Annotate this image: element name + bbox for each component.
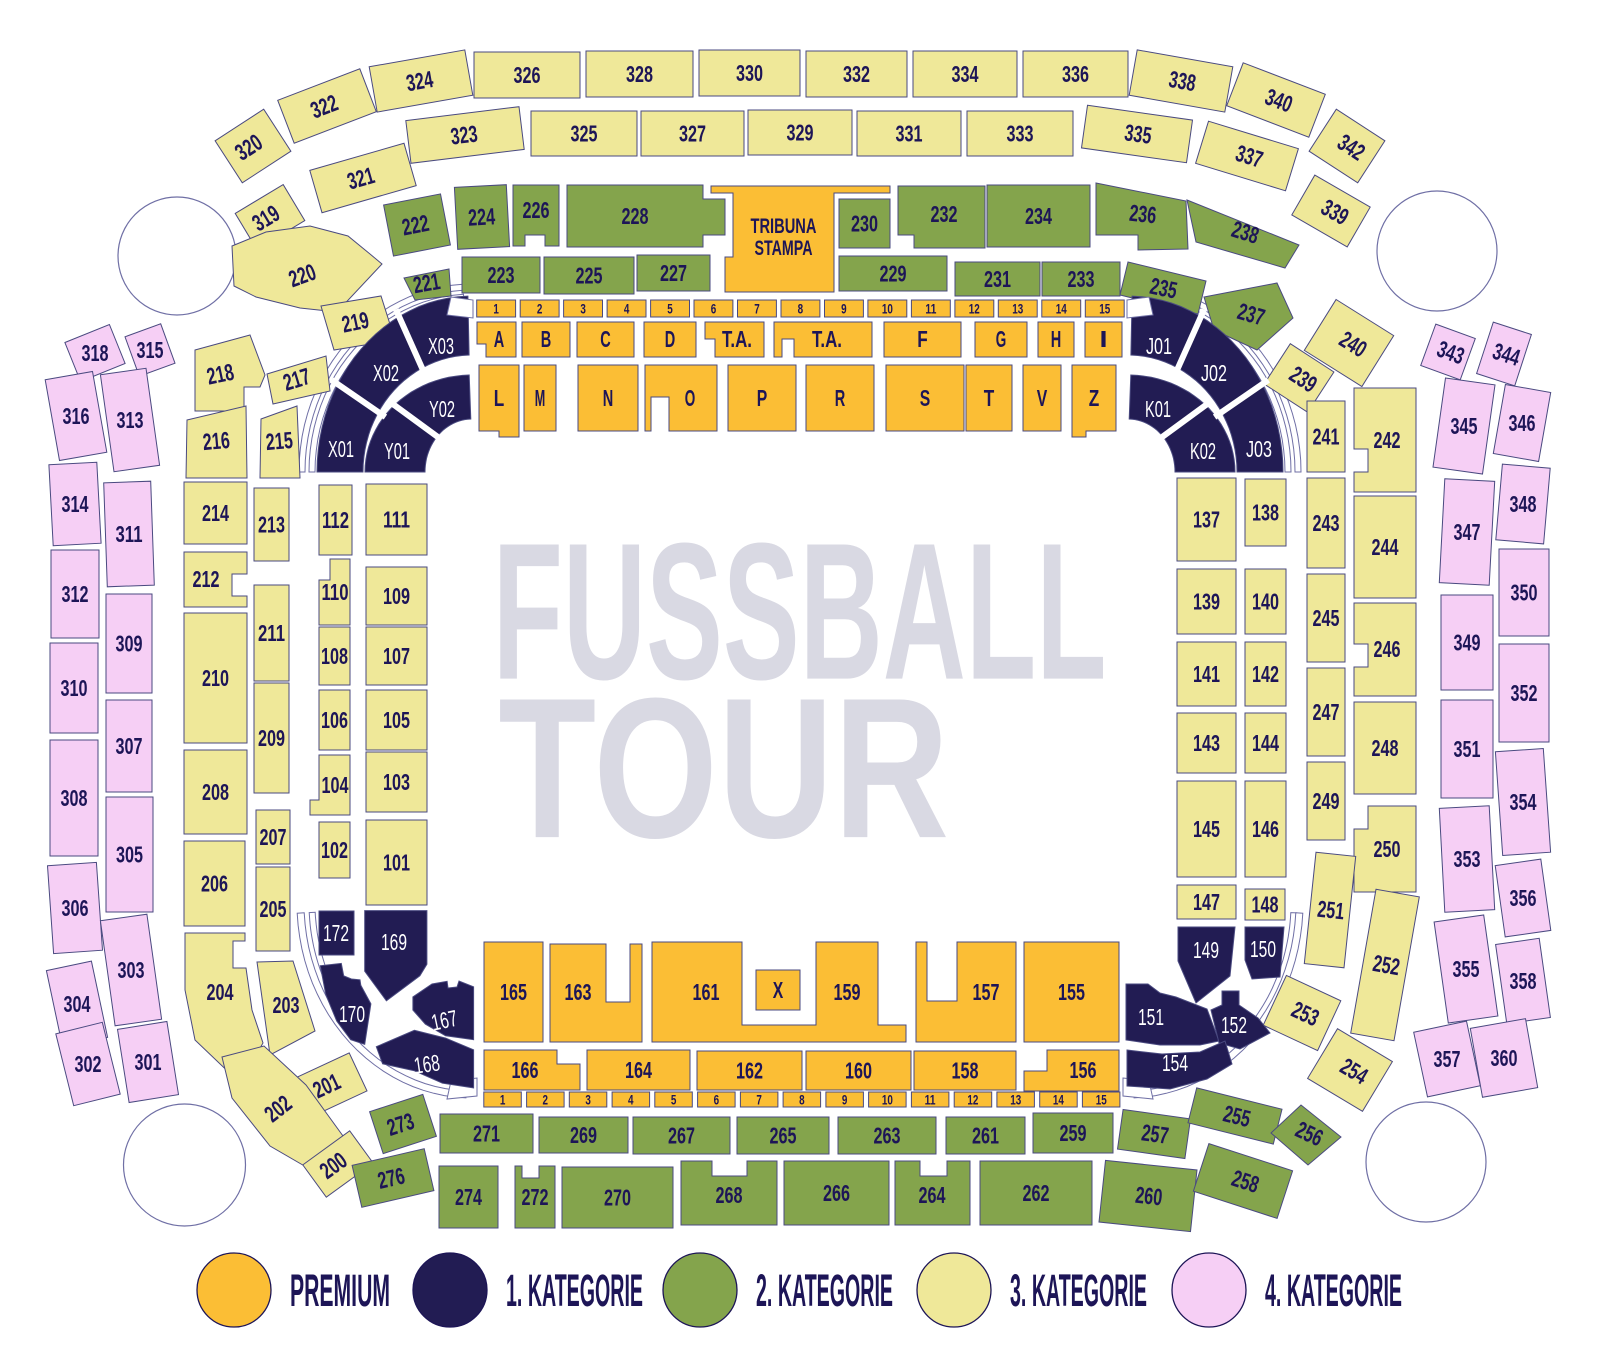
svg-text:15: 15 xyxy=(1099,301,1110,317)
svg-text:203: 203 xyxy=(273,992,300,1018)
svg-text:147: 147 xyxy=(1193,889,1220,915)
svg-text:231: 231 xyxy=(984,266,1011,292)
svg-text:257: 257 xyxy=(1140,1119,1170,1149)
svg-text:K01: K01 xyxy=(1145,396,1171,422)
svg-text:167: 167 xyxy=(429,1005,460,1036)
svg-text:259: 259 xyxy=(1060,1120,1087,1146)
svg-text:13: 13 xyxy=(1010,1092,1021,1108)
svg-text:263: 263 xyxy=(874,1123,901,1149)
svg-text:4: 4 xyxy=(628,1092,634,1108)
svg-text:210: 210 xyxy=(202,665,229,691)
svg-text:318: 318 xyxy=(82,340,109,366)
svg-text:I: I xyxy=(1100,326,1108,352)
svg-text:7: 7 xyxy=(756,1092,762,1108)
svg-text:169: 169 xyxy=(381,929,407,955)
svg-text:13: 13 xyxy=(1012,301,1023,317)
svg-text:1: 1 xyxy=(500,1092,506,1108)
svg-text:Z: Z xyxy=(1089,385,1100,411)
svg-text:213: 213 xyxy=(258,512,285,538)
svg-text:111: 111 xyxy=(383,507,410,533)
svg-text:334: 334 xyxy=(952,61,979,87)
svg-text:356: 356 xyxy=(1510,885,1537,911)
svg-text:314: 314 xyxy=(62,491,89,517)
svg-text:152: 152 xyxy=(1221,1012,1247,1038)
svg-text:10: 10 xyxy=(882,301,893,317)
svg-text:251: 251 xyxy=(1316,896,1346,925)
svg-text:149: 149 xyxy=(1193,937,1219,963)
svg-text:TRIBUNA: TRIBUNA xyxy=(751,215,817,238)
svg-text:J01: J01 xyxy=(1146,333,1172,359)
svg-text:8: 8 xyxy=(799,1092,805,1108)
svg-text:8: 8 xyxy=(798,301,804,317)
svg-text:154: 154 xyxy=(1162,1050,1188,1076)
svg-text:345: 345 xyxy=(1451,413,1478,439)
svg-text:219: 219 xyxy=(339,307,371,338)
svg-text:223: 223 xyxy=(488,262,515,288)
svg-text:312: 312 xyxy=(62,581,89,607)
svg-text:137: 137 xyxy=(1193,507,1220,533)
svg-text:3. KATEGORIE: 3. KATEGORIE xyxy=(1010,1265,1147,1316)
svg-text:144: 144 xyxy=(1252,730,1279,756)
svg-text:C: C xyxy=(600,326,611,352)
svg-text:316: 316 xyxy=(63,403,90,429)
svg-text:330: 330 xyxy=(736,60,763,86)
svg-text:106: 106 xyxy=(321,707,348,733)
svg-text:221: 221 xyxy=(411,268,442,298)
svg-text:249: 249 xyxy=(1313,788,1340,814)
svg-text:355: 355 xyxy=(1453,956,1480,982)
svg-text:351: 351 xyxy=(1454,736,1481,762)
svg-text:307: 307 xyxy=(116,733,143,759)
svg-text:246: 246 xyxy=(1374,636,1401,662)
svg-text:145: 145 xyxy=(1193,816,1220,842)
svg-text:226: 226 xyxy=(523,197,550,223)
svg-text:207: 207 xyxy=(260,824,287,850)
svg-text:244: 244 xyxy=(1372,534,1399,560)
svg-text:110: 110 xyxy=(322,579,349,605)
svg-text:324: 324 xyxy=(404,66,435,96)
svg-text:204: 204 xyxy=(207,979,234,1005)
svg-text:346: 346 xyxy=(1509,410,1536,436)
svg-text:225: 225 xyxy=(576,263,603,289)
svg-text:354: 354 xyxy=(1510,789,1537,815)
svg-text:350: 350 xyxy=(1511,580,1538,606)
svg-text:272: 272 xyxy=(522,1184,549,1210)
svg-text:146: 146 xyxy=(1252,816,1279,842)
svg-text:102: 102 xyxy=(321,837,348,863)
svg-text:358: 358 xyxy=(1510,968,1537,994)
svg-text:5: 5 xyxy=(671,1092,677,1108)
svg-text:107: 107 xyxy=(383,643,410,669)
svg-text:12: 12 xyxy=(967,1092,978,1108)
svg-text:5: 5 xyxy=(667,301,673,317)
svg-text:139: 139 xyxy=(1193,589,1220,615)
svg-text:10: 10 xyxy=(882,1092,893,1108)
svg-text:162: 162 xyxy=(736,1058,763,1084)
svg-text:12: 12 xyxy=(969,301,980,317)
svg-text:252: 252 xyxy=(1371,950,1402,980)
svg-text:M: M xyxy=(535,385,546,411)
svg-text:357: 357 xyxy=(1434,1046,1461,1072)
svg-text:159: 159 xyxy=(834,979,861,1005)
svg-text:215: 215 xyxy=(265,427,294,455)
svg-text:269: 269 xyxy=(570,1122,597,1148)
svg-text:L: L xyxy=(494,385,505,411)
svg-text:270: 270 xyxy=(604,1185,631,1211)
svg-text:143: 143 xyxy=(1193,730,1220,756)
svg-text:148: 148 xyxy=(1252,892,1279,918)
svg-text:6: 6 xyxy=(714,1092,720,1108)
svg-text:360: 360 xyxy=(1491,1045,1518,1071)
svg-text:K02: K02 xyxy=(1190,438,1216,464)
svg-text:166: 166 xyxy=(512,1057,539,1083)
svg-text:265: 265 xyxy=(770,1123,797,1149)
svg-text:230: 230 xyxy=(851,211,878,237)
svg-text:G: G xyxy=(996,326,1007,352)
svg-text:9: 9 xyxy=(842,1092,848,1108)
svg-text:109: 109 xyxy=(383,583,410,609)
svg-text:14: 14 xyxy=(1056,301,1067,317)
svg-text:151: 151 xyxy=(1138,1004,1164,1030)
svg-text:S: S xyxy=(920,385,931,411)
svg-text:250: 250 xyxy=(1374,836,1401,862)
svg-text:206: 206 xyxy=(201,871,228,897)
svg-text:331: 331 xyxy=(896,121,923,147)
svg-text:15: 15 xyxy=(1096,1092,1107,1108)
svg-text:310: 310 xyxy=(61,675,88,701)
svg-text:J02: J02 xyxy=(1201,360,1227,386)
svg-text:242: 242 xyxy=(1374,427,1401,453)
svg-text:T.A.: T.A. xyxy=(722,326,752,352)
svg-text:261: 261 xyxy=(972,1123,999,1149)
svg-text:3: 3 xyxy=(585,1092,591,1108)
svg-text:2: 2 xyxy=(537,301,543,317)
svg-text:160: 160 xyxy=(845,1058,872,1084)
svg-text:4. KATEGORIE: 4. KATEGORIE xyxy=(1265,1265,1402,1316)
svg-text:155: 155 xyxy=(1058,979,1085,1005)
svg-text:170: 170 xyxy=(339,1001,365,1027)
svg-text:260: 260 xyxy=(1134,1182,1164,1211)
svg-text:329: 329 xyxy=(787,120,814,146)
svg-text:347: 347 xyxy=(1454,519,1481,545)
svg-text:232: 232 xyxy=(931,201,958,227)
svg-text:150: 150 xyxy=(1250,936,1276,962)
svg-text:3: 3 xyxy=(580,301,586,317)
svg-text:O: O xyxy=(685,385,696,411)
svg-text:R: R xyxy=(835,385,846,411)
svg-text:14: 14 xyxy=(1053,1092,1064,1108)
svg-text:N: N xyxy=(603,385,614,411)
svg-text:9: 9 xyxy=(841,301,847,317)
svg-text:335: 335 xyxy=(1123,119,1153,149)
svg-text:304: 304 xyxy=(64,991,91,1017)
svg-text:224: 224 xyxy=(467,203,495,230)
svg-text:306: 306 xyxy=(62,895,89,921)
svg-text:311: 311 xyxy=(116,521,143,547)
svg-text:141: 141 xyxy=(1193,661,1220,687)
svg-text:323: 323 xyxy=(449,121,479,150)
svg-text:308: 308 xyxy=(61,785,88,811)
svg-text:112: 112 xyxy=(322,507,349,533)
svg-text:349: 349 xyxy=(1454,630,1481,656)
svg-text:X01: X01 xyxy=(328,436,354,462)
svg-text:1. KATEGORIE: 1. KATEGORIE xyxy=(506,1265,643,1316)
svg-text:309: 309 xyxy=(116,631,143,657)
svg-text:H: H xyxy=(1051,326,1062,352)
svg-text:X02: X02 xyxy=(373,360,399,386)
svg-text:352: 352 xyxy=(1511,680,1538,706)
svg-text:216: 216 xyxy=(202,427,231,455)
svg-text:X: X xyxy=(773,977,784,1003)
svg-text:241: 241 xyxy=(1313,424,1340,450)
svg-text:268: 268 xyxy=(716,1182,743,1208)
svg-text:303: 303 xyxy=(118,957,145,983)
svg-text:211: 211 xyxy=(258,620,285,646)
svg-text:274: 274 xyxy=(455,1184,482,1210)
svg-text:326: 326 xyxy=(514,62,541,88)
svg-text:325: 325 xyxy=(571,121,598,147)
svg-text:315: 315 xyxy=(137,337,164,363)
svg-text:229: 229 xyxy=(880,261,907,287)
svg-text:B: B xyxy=(541,326,552,352)
svg-text:161: 161 xyxy=(693,979,720,1005)
svg-text:233: 233 xyxy=(1068,266,1095,292)
svg-text:A: A xyxy=(494,326,505,352)
svg-text:228: 228 xyxy=(622,203,649,229)
svg-text:353: 353 xyxy=(1454,846,1481,872)
svg-text:PREMIUM: PREMIUM xyxy=(290,1265,390,1316)
svg-text:348: 348 xyxy=(1510,491,1537,517)
svg-text:140: 140 xyxy=(1252,589,1279,615)
svg-text:T.A.: T.A. xyxy=(812,326,842,352)
svg-text:11: 11 xyxy=(925,301,936,317)
svg-text:338: 338 xyxy=(1167,66,1198,96)
svg-text:245: 245 xyxy=(1313,605,1340,631)
svg-text:6: 6 xyxy=(711,301,717,317)
svg-text:D: D xyxy=(665,326,676,352)
svg-text:227: 227 xyxy=(660,260,687,286)
svg-text:2: 2 xyxy=(543,1092,549,1108)
svg-text:104: 104 xyxy=(322,772,349,798)
svg-text:328: 328 xyxy=(626,61,653,87)
svg-text:165: 165 xyxy=(500,979,527,1005)
svg-text:336: 336 xyxy=(1062,61,1089,87)
svg-text:101: 101 xyxy=(383,850,410,876)
svg-text:333: 333 xyxy=(1007,121,1034,147)
svg-text:142: 142 xyxy=(1252,661,1279,687)
svg-text:J03: J03 xyxy=(1246,436,1272,462)
svg-text:271: 271 xyxy=(473,1121,500,1147)
svg-text:P: P xyxy=(757,385,768,411)
svg-text:TOUR: TOUR xyxy=(498,657,949,880)
svg-text:248: 248 xyxy=(1372,735,1399,761)
svg-text:F: F xyxy=(917,326,928,352)
svg-text:1: 1 xyxy=(493,301,499,317)
svg-text:332: 332 xyxy=(843,61,870,87)
svg-text:T: T xyxy=(984,385,995,411)
svg-text:X03: X03 xyxy=(428,333,454,359)
svg-text:327: 327 xyxy=(679,121,706,147)
svg-text:157: 157 xyxy=(973,979,1000,1005)
svg-text:STAMPA: STAMPA xyxy=(755,237,813,260)
svg-text:218: 218 xyxy=(204,359,236,390)
svg-text:138: 138 xyxy=(1252,500,1279,526)
svg-text:158: 158 xyxy=(952,1058,979,1084)
svg-text:4: 4 xyxy=(624,301,630,317)
svg-text:V: V xyxy=(1037,385,1048,411)
svg-text:266: 266 xyxy=(823,1180,850,1206)
svg-text:247: 247 xyxy=(1313,699,1340,725)
svg-text:108: 108 xyxy=(321,643,348,669)
svg-text:Y01: Y01 xyxy=(384,438,410,464)
svg-text:214: 214 xyxy=(202,500,229,526)
svg-text:236: 236 xyxy=(1128,200,1158,229)
svg-text:105: 105 xyxy=(383,707,410,733)
svg-text:Y02: Y02 xyxy=(429,396,455,422)
svg-text:172: 172 xyxy=(323,920,349,946)
svg-text:264: 264 xyxy=(919,1182,946,1208)
svg-text:305: 305 xyxy=(116,842,143,868)
svg-text:302: 302 xyxy=(75,1051,102,1077)
svg-text:313: 313 xyxy=(117,407,144,433)
svg-text:222: 222 xyxy=(400,210,431,241)
svg-text:164: 164 xyxy=(625,1057,652,1083)
svg-text:209: 209 xyxy=(258,725,285,751)
svg-text:205: 205 xyxy=(260,896,287,922)
svg-text:301: 301 xyxy=(135,1049,162,1075)
svg-text:267: 267 xyxy=(668,1123,695,1149)
svg-text:11: 11 xyxy=(925,1092,936,1108)
svg-text:208: 208 xyxy=(202,779,229,805)
svg-text:212: 212 xyxy=(193,566,220,592)
svg-text:156: 156 xyxy=(1070,1057,1097,1083)
svg-text:168: 168 xyxy=(412,1049,441,1078)
svg-text:103: 103 xyxy=(383,769,410,795)
svg-text:7: 7 xyxy=(754,301,760,317)
svg-text:234: 234 xyxy=(1025,203,1052,229)
svg-text:2. KATEGORIE: 2. KATEGORIE xyxy=(756,1265,893,1316)
svg-text:243: 243 xyxy=(1313,510,1340,536)
svg-text:262: 262 xyxy=(1023,1180,1050,1206)
svg-text:163: 163 xyxy=(565,979,592,1005)
